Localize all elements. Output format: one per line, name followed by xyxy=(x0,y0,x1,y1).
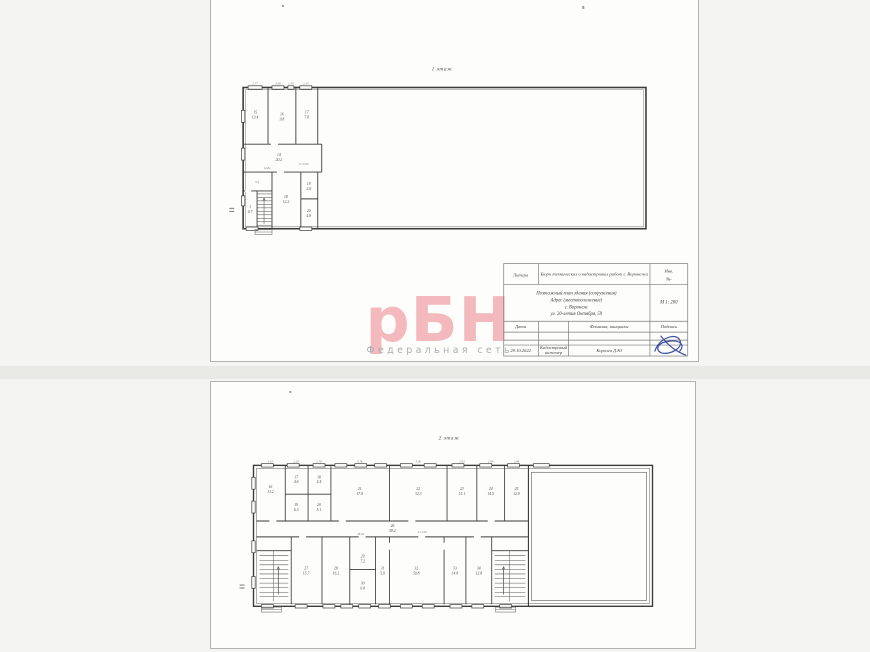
stamp-litera-label: Литера xyxy=(512,272,529,277)
dimension-label: 2.70 xyxy=(316,459,322,463)
room-label: 17.8 xyxy=(356,492,363,496)
room-label: 14 xyxy=(277,153,281,157)
dimension-label: 2.93 xyxy=(459,459,465,463)
page-1-drawing: 1 этаж xyxy=(211,0,698,361)
watermark-caption: Федеральная сеть xyxy=(366,345,512,356)
room-label: 24 xyxy=(489,487,493,491)
floor-2-title: 2 этаж xyxy=(439,436,460,442)
dimension-label: 12.84 xyxy=(264,166,271,170)
room-label: 17 xyxy=(294,475,299,479)
room-label: 27 xyxy=(304,567,309,571)
stamp-doc-title-2: Адрес (местоположение) xyxy=(550,298,603,303)
room-walls-2-top xyxy=(285,465,504,521)
stair-treads-2-right xyxy=(495,551,526,602)
floor-1-title: 1 этаж xyxy=(432,67,453,73)
room-label: 17 xyxy=(305,110,310,114)
room-label: 4.8 xyxy=(306,214,311,218)
dimension-label: 2.98 xyxy=(514,459,520,463)
room-label: 12.8 xyxy=(476,572,483,576)
room-label: 19 xyxy=(294,503,298,507)
room-label: 15.1 xyxy=(459,492,466,496)
floor-plan-1: 2.773.081.502.451513.4169.8177.81420.2h=… xyxy=(229,82,646,235)
room-label: 26 xyxy=(391,524,395,528)
room-label: 34 xyxy=(477,567,481,571)
scan-artifacts-2 xyxy=(289,391,291,393)
room-label: 18 xyxy=(284,195,288,199)
dimension-label: h=3.00 xyxy=(418,530,427,534)
stamp-name-value: Королев Д.Ю xyxy=(595,348,622,353)
signature xyxy=(655,336,686,355)
room-walls xyxy=(243,87,322,228)
room-label: 32.3 xyxy=(415,492,422,496)
room-label: 30 xyxy=(361,581,365,585)
dimension-label: 5.9 xyxy=(255,180,259,184)
room-label: 16 xyxy=(280,112,284,116)
title-block: Литера Бюро технических и кадастровых ра… xyxy=(504,264,688,356)
stamp-date-value: 29.10.2022 xyxy=(510,348,531,353)
elevation-mark-1 xyxy=(229,208,234,212)
page-2: 2 этаж xyxy=(210,381,696,649)
room-label: 32 xyxy=(414,567,418,571)
room-label: 6.8 xyxy=(360,586,365,590)
dimension-label: 5.78 xyxy=(357,459,363,463)
stamp-name-label: Фамилия, инициалы xyxy=(590,324,629,330)
stamp-date-label: Дата xyxy=(514,324,527,329)
room-label: 25 xyxy=(515,487,519,491)
dimension-label: 28.94 xyxy=(357,532,364,536)
room-label: 20 xyxy=(307,209,311,213)
stair-treads-2-left xyxy=(259,551,288,602)
room-label: 20.2 xyxy=(276,158,283,162)
dimension-label: 2.45 xyxy=(303,82,309,86)
stamp-role-line2: инженер xyxy=(545,350,563,355)
room-labels-2: 4.102.282.705.785.902.932.962.981613.217… xyxy=(267,459,520,590)
room-label: 28 xyxy=(334,567,338,571)
room-label: 6.3 xyxy=(294,508,299,512)
dimension-label: 2.77 xyxy=(252,82,258,86)
room-label: 2.0 xyxy=(306,187,311,191)
dimension-label: 3.08 xyxy=(275,82,281,86)
dimension-label: 5.90 xyxy=(416,459,422,463)
room-label: 18 xyxy=(317,475,321,479)
room-label: 29 xyxy=(361,555,365,559)
stamp-organization: Бюро технических и кадастровых работ г. … xyxy=(540,271,649,276)
room-label: 13.4 xyxy=(252,115,259,119)
page-2-drawing: 2 этаж xyxy=(211,382,695,648)
room-label: 5.9 xyxy=(380,572,385,576)
room-label: 4.7 xyxy=(248,210,254,214)
stamp-doc-title-3: г. Воронеж xyxy=(565,305,589,310)
building-outline-2 xyxy=(254,465,653,606)
dimension-label: 4.10 xyxy=(268,459,274,463)
page-separator xyxy=(0,366,870,379)
stamp-doc-title-1: Поэтажный план здания (сооружения) xyxy=(535,290,617,296)
room-label: 58.2 xyxy=(389,529,396,533)
dimension-label: 2.28 xyxy=(293,459,299,463)
dimension-label: 1.50 xyxy=(288,82,294,86)
room-label: 1 xyxy=(249,205,251,209)
room-label: 12.9 xyxy=(513,492,520,496)
stair-treads-1 xyxy=(257,194,272,225)
room-label: 21 xyxy=(358,487,362,491)
stamp-inv-label: Инв. xyxy=(663,268,673,273)
dimension-label: 2.96 xyxy=(488,459,494,463)
room-label: 4.6 xyxy=(294,480,299,484)
room-label: 33 xyxy=(453,567,457,571)
stamp-sign-label: Подпись xyxy=(660,324,678,329)
room-label: 16.2 xyxy=(333,572,340,576)
dimension-label: h=3.00 xyxy=(299,162,308,166)
room-label: 5.1 xyxy=(317,508,322,512)
scan-artifacts xyxy=(282,5,584,9)
room-label: 4.4 xyxy=(317,480,322,484)
room-label: 20 xyxy=(317,503,321,507)
building-outline xyxy=(243,87,646,228)
room-label: 9.8 xyxy=(280,117,285,121)
room-label: 14.8 xyxy=(452,572,459,576)
room-label: 22 xyxy=(416,487,420,491)
room-label: 50.8 xyxy=(413,572,420,576)
room-label: 7.2 xyxy=(360,560,365,564)
room-label: 16 xyxy=(268,485,272,489)
room-label: 19 xyxy=(307,182,311,186)
page-1: 1 этаж xyxy=(210,0,699,362)
elevation-mark-2 xyxy=(240,584,245,588)
room-label: 31 xyxy=(381,567,385,571)
room-label: 13.2 xyxy=(267,490,274,494)
room-label: 12.2 xyxy=(283,200,290,204)
room-label: 7.8 xyxy=(304,115,309,119)
open-area-2 xyxy=(528,465,646,606)
floor-plan-2: 4.102.282.705.785.902.932.962.981613.217… xyxy=(240,459,653,612)
room-label: 15 xyxy=(253,110,257,114)
room-label: 23 xyxy=(460,487,464,491)
stamp-doc-title-4: ул. 20-летия Октября, 59 xyxy=(549,312,602,317)
room-label: 15.7 xyxy=(303,572,311,576)
stamp-inv-number: №- xyxy=(666,276,672,281)
stamp-scale: М 1: 200 xyxy=(659,300,678,305)
watermark: рБН Федеральная сеть xyxy=(365,284,512,356)
room-label: 14.5 xyxy=(487,492,494,496)
